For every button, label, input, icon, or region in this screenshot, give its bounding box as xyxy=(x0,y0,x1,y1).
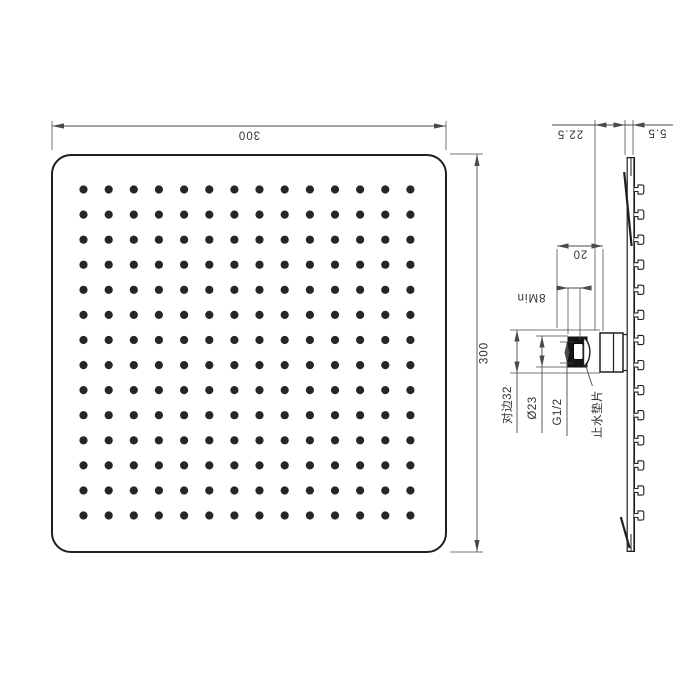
nozzle-dot xyxy=(130,461,138,469)
nozzle-dot xyxy=(306,236,314,244)
dim-depth-group: 22.5 5.5 xyxy=(552,120,673,330)
dim-height: 300 xyxy=(450,154,491,552)
nozzle-dot xyxy=(331,486,339,494)
nozzle-dot xyxy=(406,386,414,394)
dim-depth-label: 22.5 xyxy=(557,128,583,140)
nozzle-dot xyxy=(130,511,138,519)
nozzle-dot xyxy=(331,461,339,469)
nozzle-dot xyxy=(331,436,339,444)
nozzle-dot xyxy=(230,461,238,469)
nozzle-dot xyxy=(331,311,339,319)
dim-thread-label: G1/2 xyxy=(552,399,564,426)
nozzle-dot xyxy=(381,236,389,244)
nozzle-dot xyxy=(205,261,213,269)
nozzle-dot xyxy=(79,336,87,344)
nozzle-dot xyxy=(255,461,263,469)
nozzle-dot xyxy=(255,361,263,369)
nozzle-dot xyxy=(79,486,87,494)
nozzle-dot xyxy=(381,461,389,469)
nozzle-dot xyxy=(281,261,289,269)
technical-drawing: 300 300 xyxy=(0,0,700,700)
inlet-connector xyxy=(568,333,627,372)
nozzle-dot xyxy=(180,311,188,319)
nozzle-dot xyxy=(230,411,238,419)
nozzle-dot xyxy=(356,261,364,269)
nozzle-dot xyxy=(130,236,138,244)
nozzle-dot xyxy=(79,461,87,469)
nozzle-dot xyxy=(255,436,263,444)
nozzle-dot xyxy=(306,185,314,193)
nozzle-dot xyxy=(281,461,289,469)
nozzle-dot xyxy=(79,436,87,444)
drawing-canvas: 300 300 xyxy=(0,0,700,700)
nozzle-dot xyxy=(381,311,389,319)
nozzle-dot xyxy=(105,386,113,394)
nozzle-dot xyxy=(306,436,314,444)
nozzle-dot xyxy=(180,411,188,419)
dim-boss-label: 20 xyxy=(573,248,588,260)
side-view: 22.5 5.5 20 8Min 对边32 xyxy=(500,120,673,552)
nozzle-dot xyxy=(306,211,314,219)
nozzle-dot xyxy=(281,436,289,444)
nozzle-dot xyxy=(255,386,263,394)
nozzle-dot xyxy=(331,361,339,369)
nozzle-dot xyxy=(205,286,213,294)
nozzle-dot xyxy=(356,436,364,444)
nozzle-dot xyxy=(155,336,163,344)
nozzle-dot xyxy=(381,336,389,344)
nozzle-dot xyxy=(155,311,163,319)
nozzle-dot xyxy=(356,236,364,244)
nozzle-dot xyxy=(381,386,389,394)
side-nozzle xyxy=(634,185,644,194)
nozzle-dot xyxy=(205,511,213,519)
nozzle-dot xyxy=(356,461,364,469)
side-nozzle xyxy=(634,461,644,470)
nozzle-dot xyxy=(205,336,213,344)
side-nozzle-row xyxy=(634,185,644,520)
nozzle-dot xyxy=(155,436,163,444)
nozzle-dot xyxy=(306,511,314,519)
nozzle-dot xyxy=(155,261,163,269)
nozzle-dot xyxy=(180,236,188,244)
nozzle-dot xyxy=(356,361,364,369)
nozzle-dot xyxy=(331,411,339,419)
nozzle-dot xyxy=(130,286,138,294)
nozzle-dot xyxy=(130,311,138,319)
nozzle-dot xyxy=(306,336,314,344)
dim-height-label: 300 xyxy=(479,342,491,364)
nozzle-dot xyxy=(230,236,238,244)
nozzle-dot xyxy=(180,486,188,494)
nozzle-dot xyxy=(130,486,138,494)
nozzle-dot xyxy=(306,286,314,294)
nozzle-dot xyxy=(381,211,389,219)
nozzle-dot xyxy=(79,185,87,193)
nozzle-dot xyxy=(180,185,188,193)
nozzle-dot xyxy=(381,411,389,419)
nozzle-dot xyxy=(130,411,138,419)
nozzle-dot xyxy=(255,211,263,219)
nozzle-dot xyxy=(255,261,263,269)
dim-width-label: 300 xyxy=(238,129,260,141)
nozzle-dot xyxy=(180,211,188,219)
thread-window xyxy=(574,344,584,360)
nozzle-dot xyxy=(105,211,113,219)
nozzle-dot xyxy=(105,261,113,269)
nozzle-dot xyxy=(331,386,339,394)
nozzle-dot xyxy=(356,185,364,193)
nozzle-dot xyxy=(406,411,414,419)
nozzle-dot xyxy=(381,436,389,444)
nozzle-dot xyxy=(356,286,364,294)
nozzle-dot xyxy=(281,386,289,394)
side-nozzle xyxy=(634,235,644,244)
nozzle-dot xyxy=(205,361,213,369)
nozzle-dot xyxy=(406,461,414,469)
nozzle-dot xyxy=(79,211,87,219)
nozzle-dot xyxy=(155,461,163,469)
nozzle-dot xyxy=(155,486,163,494)
nozzle-dot xyxy=(205,411,213,419)
dim-thread-min-label: 8Min xyxy=(517,291,546,303)
nozzle-dot xyxy=(205,436,213,444)
nozzle-dot xyxy=(306,411,314,419)
nozzle-dot xyxy=(205,311,213,319)
nozzle-dot xyxy=(79,286,87,294)
plate-profile xyxy=(621,157,644,552)
side-nozzle xyxy=(634,210,644,219)
nozzle-dot xyxy=(130,336,138,344)
nozzle-dot xyxy=(331,185,339,193)
nozzle-dot xyxy=(281,236,289,244)
nozzle-dot xyxy=(331,336,339,344)
nozzle-dot xyxy=(105,511,113,519)
nozzle-dot xyxy=(306,486,314,494)
nozzle-dot xyxy=(105,486,113,494)
nozzle-dot xyxy=(230,486,238,494)
nozzle-dot xyxy=(255,511,263,519)
side-nozzle xyxy=(634,260,644,269)
nozzle-dot xyxy=(406,211,414,219)
nozzle-dot xyxy=(130,436,138,444)
dim-hex-flats-label: 对边32 xyxy=(500,386,514,424)
nozzle-dot xyxy=(306,386,314,394)
dim-width: 300 xyxy=(52,121,446,150)
side-nozzle xyxy=(634,411,644,420)
side-nozzle xyxy=(634,310,644,319)
nozzle-dot xyxy=(356,386,364,394)
nozzle-dot xyxy=(79,311,87,319)
water-stop-gasket xyxy=(584,338,590,367)
gasket-callout: 止水垫片 xyxy=(586,364,605,439)
nozzle-dot xyxy=(79,261,87,269)
nozzle-dot xyxy=(79,511,87,519)
nozzle-dot xyxy=(79,411,87,419)
dim-gasket-od-label: Ø23 xyxy=(527,396,539,419)
nozzle-dot xyxy=(230,361,238,369)
nozzle-dot xyxy=(406,436,414,444)
nozzle-dot xyxy=(130,185,138,193)
nozzle-dot xyxy=(205,211,213,219)
nozzle-dot xyxy=(406,236,414,244)
nozzle-dot xyxy=(230,336,238,344)
nozzle-dot xyxy=(205,486,213,494)
nozzle-dot xyxy=(205,386,213,394)
nozzle-dot xyxy=(331,261,339,269)
nozzle-dot xyxy=(356,311,364,319)
nozzle-dot xyxy=(406,311,414,319)
nozzle-dot xyxy=(306,461,314,469)
dim-thickness-label: 5.5 xyxy=(648,127,667,139)
nozzle-dot xyxy=(205,236,213,244)
nozzle-dot xyxy=(105,411,113,419)
nozzle-dot xyxy=(406,336,414,344)
nozzle-dot xyxy=(180,286,188,294)
nozzle-dot xyxy=(130,361,138,369)
nozzle-dot xyxy=(255,286,263,294)
nozzle-dot xyxy=(381,486,389,494)
nozzle-dot xyxy=(281,511,289,519)
nozzle-dot xyxy=(105,461,113,469)
nozzle-dot xyxy=(406,486,414,494)
nozzle-dot xyxy=(381,185,389,193)
nozzle-dot xyxy=(281,311,289,319)
top-taper-edge xyxy=(624,172,631,246)
nozzle-dot xyxy=(180,386,188,394)
side-nozzle xyxy=(634,285,644,294)
nozzle-dot xyxy=(230,311,238,319)
mounting-boss xyxy=(600,333,623,372)
side-nozzle xyxy=(634,361,644,370)
nozzle-dot xyxy=(281,336,289,344)
nozzle-dot xyxy=(180,336,188,344)
nozzle-dot xyxy=(381,511,389,519)
nozzle-dot xyxy=(255,411,263,419)
nozzle-dot xyxy=(79,386,87,394)
gasket-callout-label: 止水垫片 xyxy=(590,390,604,438)
nozzle-dot xyxy=(155,236,163,244)
nozzle-dot xyxy=(105,286,113,294)
bottom-taper-edge xyxy=(621,517,630,548)
nozzle-dot xyxy=(205,461,213,469)
nozzle-dot xyxy=(105,361,113,369)
nozzle-dot xyxy=(406,361,414,369)
nozzle-dot xyxy=(130,386,138,394)
nozzle-dot xyxy=(306,261,314,269)
nozzle-dot xyxy=(230,261,238,269)
nozzle-dot xyxy=(155,361,163,369)
nozzle-dot xyxy=(230,386,238,394)
nozzle-dot xyxy=(406,511,414,519)
nozzle-dot xyxy=(406,185,414,193)
nozzle-dot xyxy=(381,286,389,294)
nozzle-dot xyxy=(406,286,414,294)
nozzle-dot xyxy=(356,486,364,494)
nozzle-dot xyxy=(281,361,289,369)
nozzle-dot xyxy=(155,386,163,394)
nozzle-dot xyxy=(230,511,238,519)
side-nozzle xyxy=(634,335,644,344)
nozzle-dot xyxy=(230,211,238,219)
side-nozzle xyxy=(634,386,644,395)
nozzle-dot xyxy=(356,211,364,219)
nozzle-dot xyxy=(105,436,113,444)
nozzle-dot xyxy=(381,261,389,269)
nozzle-dot xyxy=(331,236,339,244)
nozzle-dot xyxy=(281,286,289,294)
nozzle-dot xyxy=(130,261,138,269)
nozzle-dot xyxy=(205,185,213,193)
nozzle-dot xyxy=(255,311,263,319)
nozzle-dot xyxy=(356,511,364,519)
nozzle-dot xyxy=(255,336,263,344)
nozzle-dot xyxy=(155,286,163,294)
nozzle-dot xyxy=(180,361,188,369)
nozzle-dot xyxy=(255,236,263,244)
nozzle-dot xyxy=(105,185,113,193)
nozzle-dot xyxy=(306,361,314,369)
side-nozzle xyxy=(634,511,644,520)
nozzle-dot xyxy=(230,286,238,294)
nozzle-dot xyxy=(180,461,188,469)
side-nozzle xyxy=(634,486,644,495)
nozzle-dot xyxy=(105,311,113,319)
dim-thread-min-group: 8Min xyxy=(517,285,592,340)
nozzle-dot xyxy=(381,361,389,369)
side-nozzle xyxy=(634,436,644,445)
front-view: 300 300 xyxy=(52,121,491,552)
nozzle-dot xyxy=(79,361,87,369)
nozzle-dot xyxy=(180,261,188,269)
nozzle-dot xyxy=(331,211,339,219)
nozzle-dot xyxy=(155,185,163,193)
nozzle-dot xyxy=(180,511,188,519)
nozzle-dot xyxy=(331,286,339,294)
nozzle-dot xyxy=(255,486,263,494)
nozzle-dot xyxy=(105,336,113,344)
nozzle-dot xyxy=(155,511,163,519)
nozzle-dot xyxy=(255,185,263,193)
nozzle-dot xyxy=(155,211,163,219)
nozzle-dot xyxy=(356,336,364,344)
nozzle-dot xyxy=(406,261,414,269)
nozzle-dot xyxy=(155,411,163,419)
nozzle-dot xyxy=(281,411,289,419)
nozzle-dot xyxy=(180,436,188,444)
nozzle-dot xyxy=(230,436,238,444)
nozzle-dot xyxy=(130,211,138,219)
nozzle-dot xyxy=(230,185,238,193)
nozzle-dot xyxy=(356,411,364,419)
nozzle-dot xyxy=(281,185,289,193)
nozzle-dot xyxy=(306,311,314,319)
nozzle-dot xyxy=(105,236,113,244)
nozzle-dot xyxy=(281,486,289,494)
nozzle-dot xyxy=(79,236,87,244)
nozzle-dot xyxy=(281,211,289,219)
nozzle-dot xyxy=(331,511,339,519)
